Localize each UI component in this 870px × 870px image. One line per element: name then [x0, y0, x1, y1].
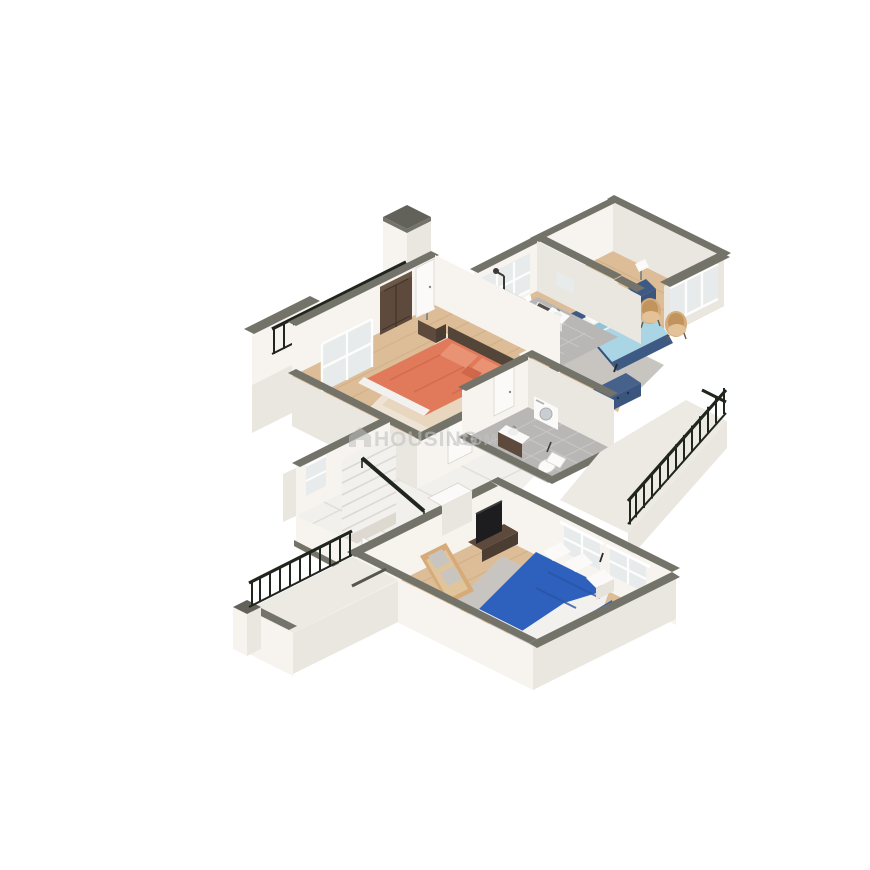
floorplan-svg: HOUSING .COM	[0, 0, 870, 870]
balcony-column	[233, 600, 261, 656]
watermark-suffix: .COM	[452, 432, 498, 449]
exterior-wall-edge	[283, 468, 296, 522]
floorplan-render: HOUSING .COM	[0, 0, 870, 870]
accent-chair	[665, 311, 687, 341]
